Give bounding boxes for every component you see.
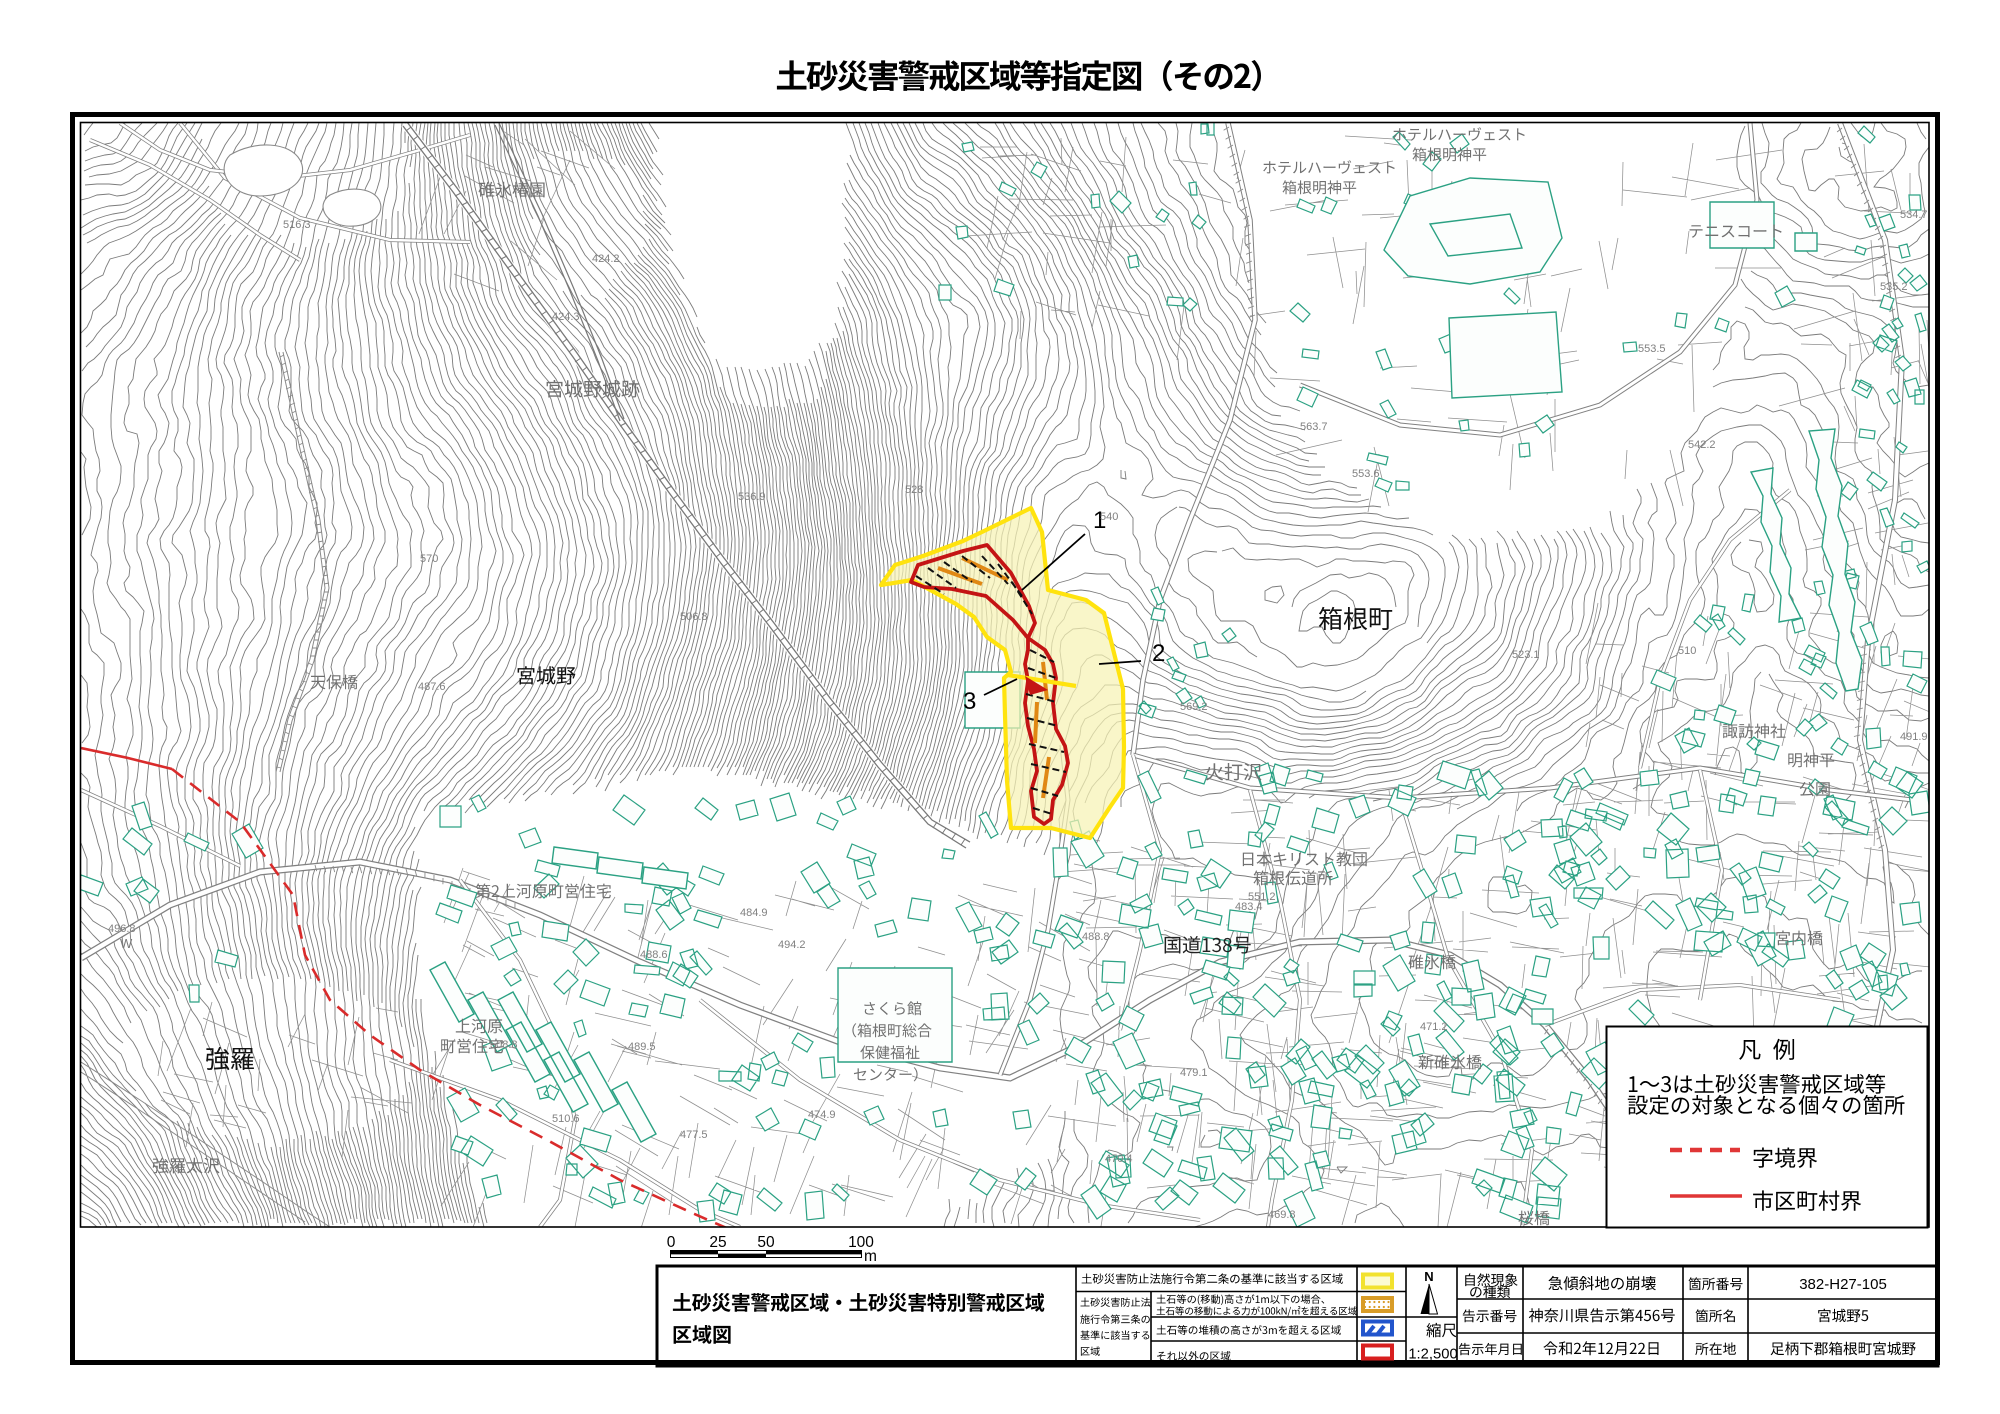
svg-text:570: 570 xyxy=(420,553,438,565)
svg-text:523.1: 523.1 xyxy=(1512,649,1540,661)
svg-text:470.4: 470.4 xyxy=(1105,1153,1133,1165)
svg-text:510: 510 xyxy=(1678,645,1696,657)
svg-text:569.2: 569.2 xyxy=(1180,701,1208,713)
svg-text:491.9: 491.9 xyxy=(1900,731,1928,743)
svg-text:489.5: 489.5 xyxy=(628,1041,656,1053)
svg-text:563.7: 563.7 xyxy=(1300,421,1328,433)
svg-text:535.2: 535.2 xyxy=(1880,281,1908,293)
svg-text:424.2: 424.2 xyxy=(592,253,620,265)
svg-text:477.5: 477.5 xyxy=(680,1129,708,1141)
svg-text:50: 50 xyxy=(757,1234,775,1251)
svg-text:469.8: 469.8 xyxy=(1268,1209,1296,1221)
svg-text:1:2,500: 1:2,500 xyxy=(1408,1347,1457,1363)
svg-text:488.8: 488.8 xyxy=(1082,931,1110,943)
svg-text:553.6: 553.6 xyxy=(1352,468,1380,480)
svg-text:534.7: 534.7 xyxy=(1900,209,1928,221)
svg-text:2: 2 xyxy=(1152,640,1165,667)
svg-text:3: 3 xyxy=(963,688,976,715)
svg-text:528: 528 xyxy=(905,484,923,496)
svg-text:506.8: 506.8 xyxy=(680,611,708,623)
svg-text:W: W xyxy=(120,936,133,951)
svg-text:516.3: 516.3 xyxy=(283,219,311,231)
svg-text:424.3: 424.3 xyxy=(552,311,580,323)
svg-text:488.6: 488.6 xyxy=(640,949,668,961)
svg-text:542.2: 542.2 xyxy=(1688,439,1716,451)
svg-text:m: m xyxy=(864,1248,877,1265)
svg-text:0: 0 xyxy=(667,1234,676,1251)
svg-text:25: 25 xyxy=(709,1234,726,1251)
svg-text:551.2: 551.2 xyxy=(1248,891,1276,903)
svg-text:479.1: 479.1 xyxy=(1180,1067,1208,1079)
svg-text:510.6: 510.6 xyxy=(552,1113,580,1125)
svg-text:474.9: 474.9 xyxy=(808,1109,836,1121)
svg-text:487.6: 487.6 xyxy=(418,681,446,693)
svg-text:494.2: 494.2 xyxy=(778,939,806,951)
svg-text:508.8: 508.8 xyxy=(490,1039,518,1051)
svg-text:553.5: 553.5 xyxy=(1638,343,1666,355)
svg-text:536.9: 536.9 xyxy=(738,491,766,503)
svg-text:N: N xyxy=(1424,1269,1433,1284)
svg-text:540: 540 xyxy=(1100,511,1118,523)
svg-text:382-H27-105: 382-H27-105 xyxy=(1799,1276,1887,1293)
svg-text:496.8: 496.8 xyxy=(108,923,136,935)
svg-text:484.9: 484.9 xyxy=(740,907,768,919)
svg-text:471.2: 471.2 xyxy=(1420,1021,1448,1033)
